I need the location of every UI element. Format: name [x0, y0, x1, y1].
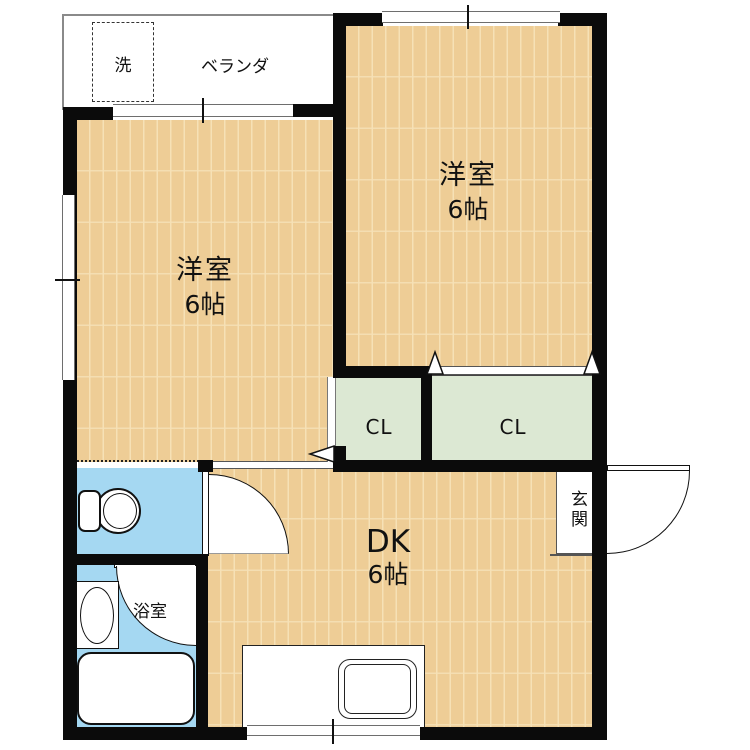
wall-closet-divider	[421, 366, 432, 472]
bedroom-left-size: 6帖	[135, 291, 275, 320]
bath-sink-bowl-icon	[80, 587, 114, 644]
wall-bottom-a	[63, 727, 247, 740]
wall-door-stub	[198, 460, 213, 472]
dining-kitchen-name: DK	[318, 525, 458, 559]
entrance-step-line	[550, 554, 592, 556]
wall-bottom-b	[420, 727, 607, 740]
window-kitchen	[247, 725, 420, 736]
balcony-label: ベランダ	[165, 52, 305, 77]
bathtub-icon	[77, 652, 195, 725]
closet-right-label: CL	[472, 415, 554, 439]
bedroom-right-size: 6帖	[398, 196, 538, 225]
dining-kitchen-size: 6帖	[318, 561, 458, 590]
wall-bath-right	[196, 554, 208, 740]
toilet-tank-icon	[78, 490, 101, 532]
bedroom-right-name: 洋室	[398, 160, 538, 192]
wall-under-closets	[333, 460, 607, 472]
floor-plan: 洗 ベランダ 洋室 6帖 洋室 6帖 DK 6帖 CL CL 浴室 玄関	[0, 0, 750, 750]
wall-top-left-a	[63, 107, 113, 120]
closet-right-door-track	[428, 366, 592, 375]
window-bedroom-left-balcony	[113, 104, 293, 117]
wall-toilet-bath-separator	[63, 554, 208, 565]
bedroom-left-name: 洋室	[135, 255, 275, 287]
wall-center-vertical	[333, 13, 346, 377]
wall-right	[592, 13, 607, 740]
closet-left-label: CL	[338, 415, 420, 439]
bedroom-dk-opening	[213, 461, 333, 469]
window-left-wall	[62, 195, 75, 380]
laundry-label: 洗	[92, 51, 154, 76]
entrance-label: 玄関	[565, 478, 590, 542]
toilet-partition-dotted-line	[70, 460, 203, 463]
toilet-seat-icon	[103, 493, 137, 529]
wall-closet-left-top	[333, 366, 428, 378]
toilet-door-leaf	[202, 468, 209, 556]
entrance-door-swing	[607, 471, 690, 554]
wall-top-right-b	[558, 13, 607, 26]
bathroom-label: 浴室	[120, 597, 180, 622]
window-bedroom-right	[382, 11, 560, 23]
kitchen-sink-basin-icon	[344, 664, 411, 714]
